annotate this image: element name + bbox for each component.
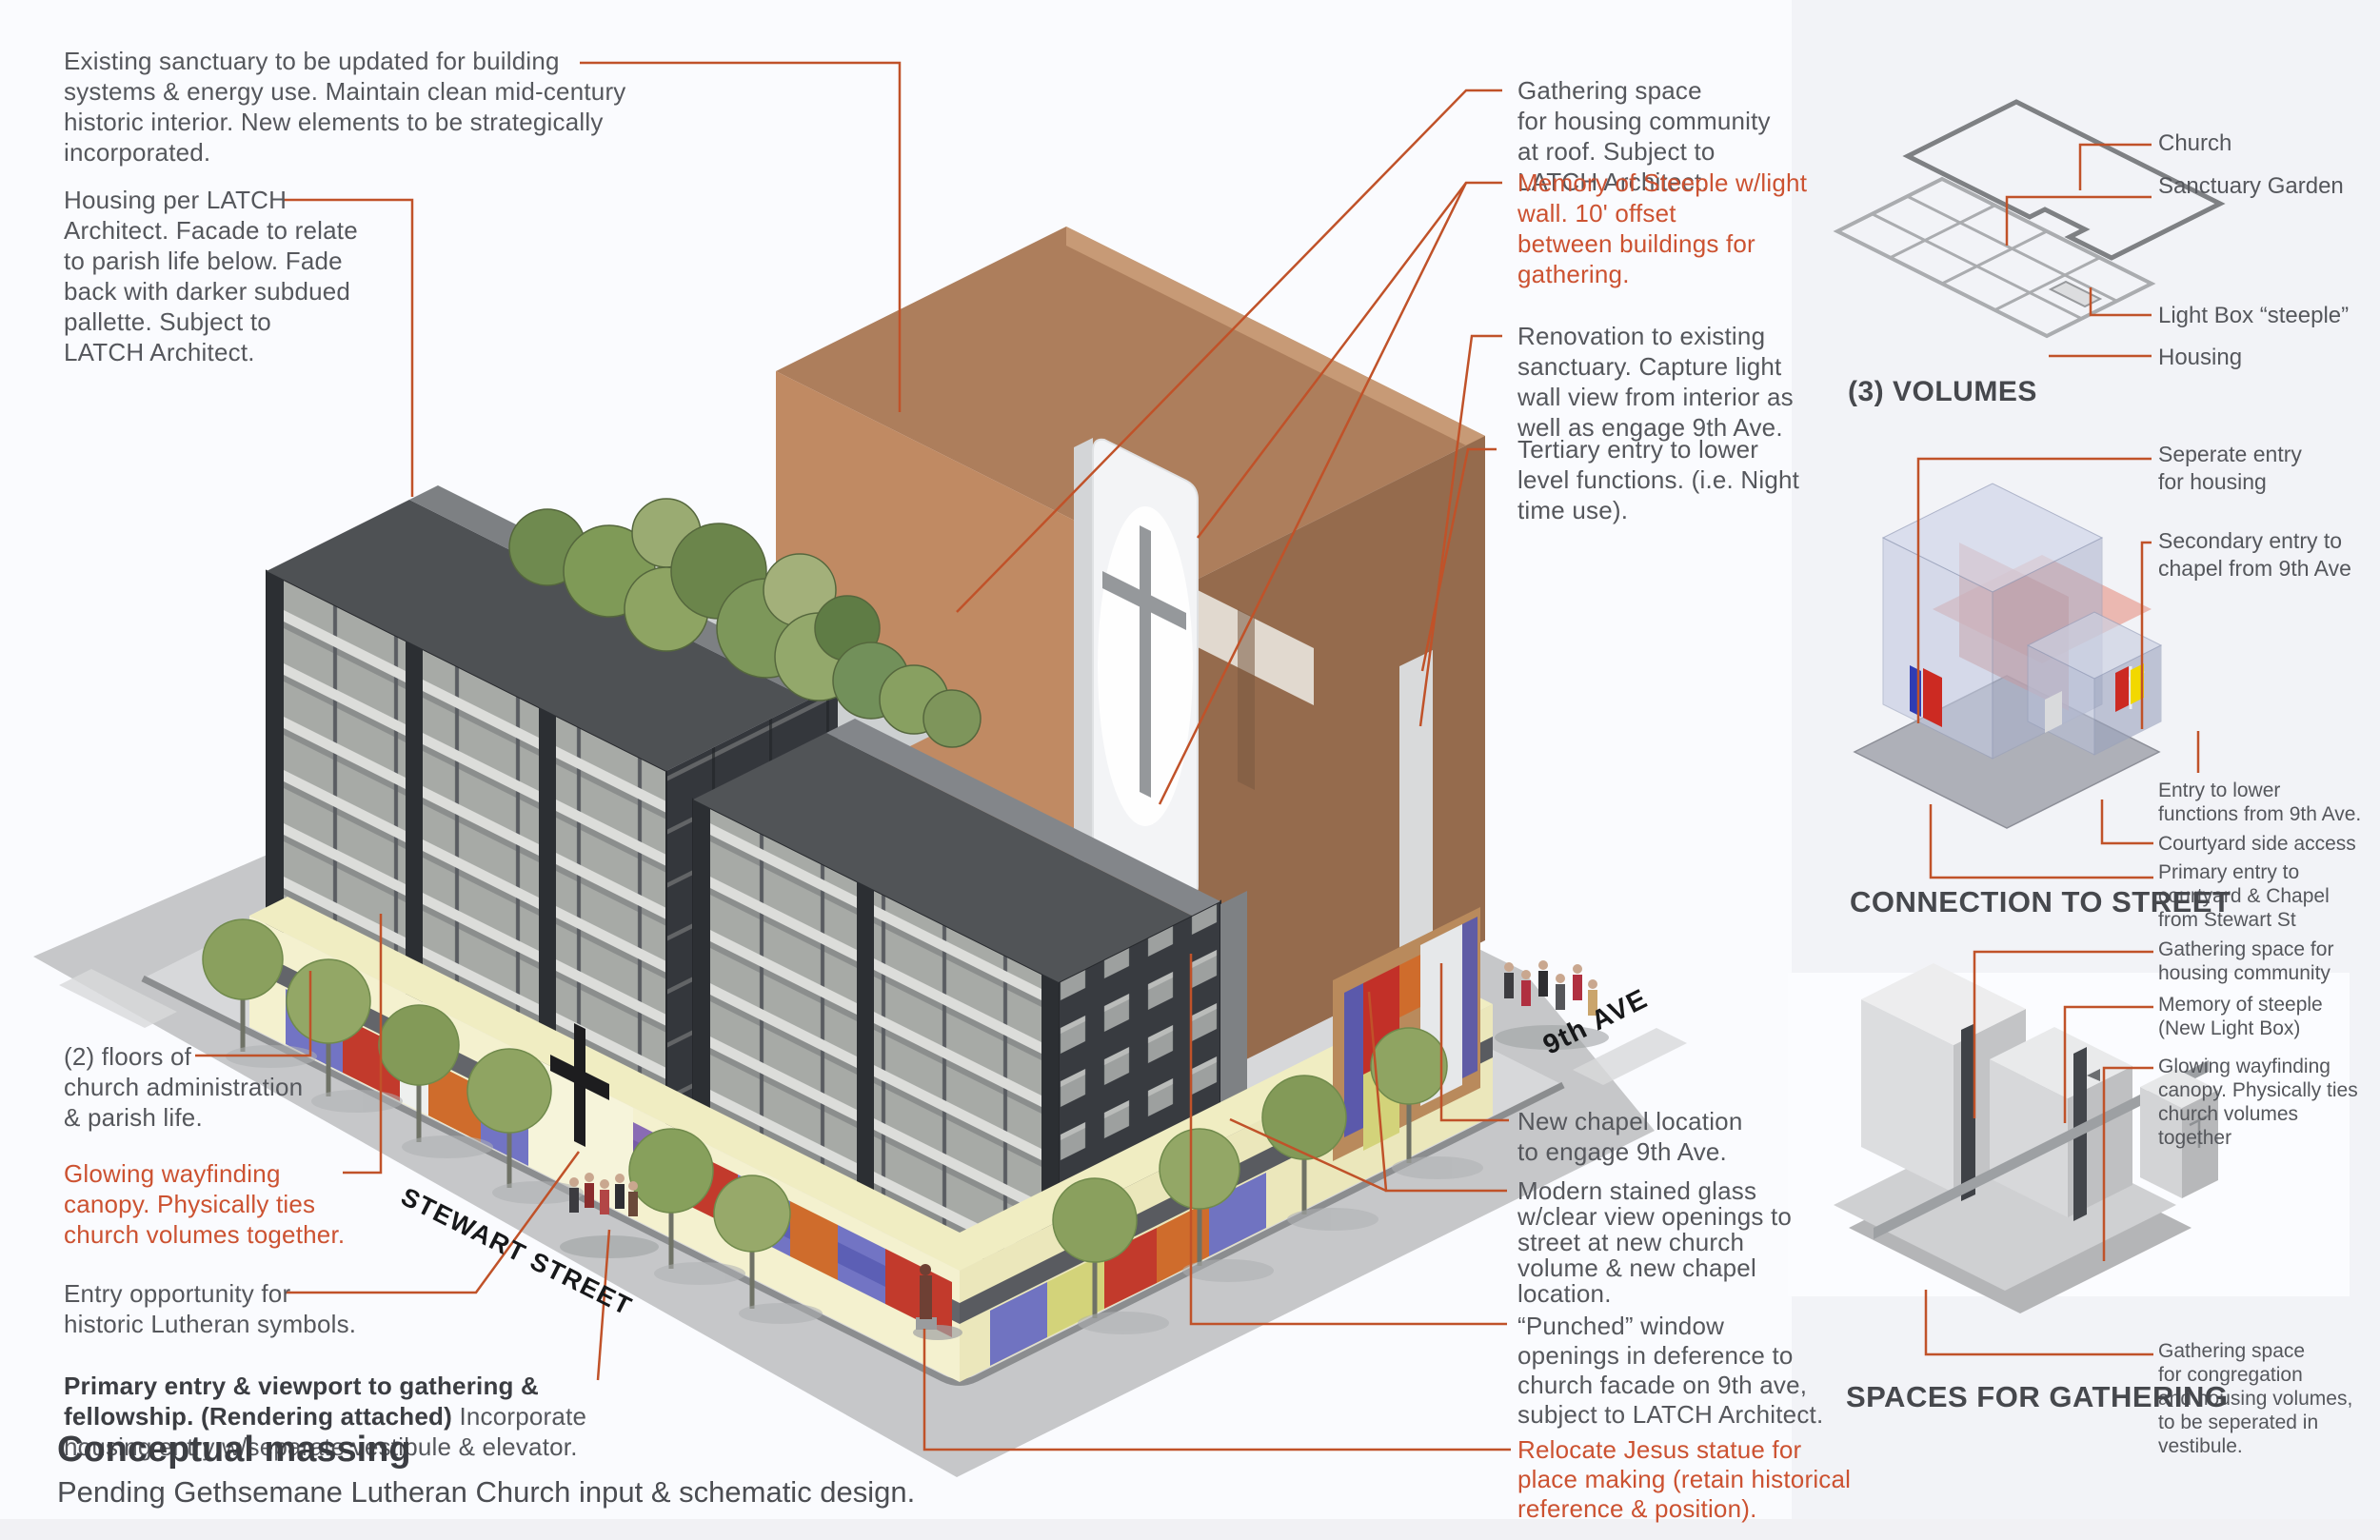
note-entry-opportunity: Entry opportunity for historic Lutheran … <box>64 1278 426 1339</box>
primary-entry-slab <box>1923 668 1942 727</box>
connection-label-housing-entry: Seperate entry for housing <box>2158 441 2302 496</box>
light-box-plan <box>2051 282 2100 306</box>
note-punched-window: “Punched” window openings in deference t… <box>1517 1312 1860 1430</box>
note-relocate-statue: Relocate Jesus statue for place making (… <box>1517 1435 1898 1524</box>
note-renovation: Renovation to existing sanctuary. Captur… <box>1517 321 1860 443</box>
page-title: Conceptual massing <box>57 1430 411 1471</box>
steeple-cross-icon <box>1140 525 1151 798</box>
diagram-connection <box>1854 484 2161 828</box>
steeple-light-box <box>1074 438 1198 896</box>
tertiary-entry-niche <box>1399 650 1433 980</box>
volumes-label-lightbox: Light Box “steeple” <box>2158 302 2349 330</box>
connection-label-lower-entry: Entry to lower functions from 9th Ave. <box>2158 779 2361 826</box>
gathering-label-steeple: Memory of steeple (New Light Box) <box>2158 993 2323 1040</box>
connection-title: CONNECTION TO STREET <box>1850 885 2231 919</box>
note-tertiary-entry: Tertiary entry to lower level functions.… <box>1517 434 1860 525</box>
gathering-label-housing: Gathering space for housing community <box>2158 938 2333 985</box>
volumes-label-garden: Sanctuary Garden <box>2158 172 2344 201</box>
connection-label-secondary-entry: Secondary entry to chapel from 9th Ave <box>2158 527 2351 582</box>
gathering-block <box>1990 1027 2132 1217</box>
note-housing-latch: Housing per LATCH Architect. Facade to r… <box>64 185 407 367</box>
note-new-chapel: New chapel location to engage 9th Ave. <box>1517 1106 1822 1167</box>
page-subtitle: Pending Gethsemane Lutheran Church input… <box>57 1475 915 1510</box>
note-admin-floors: (2) floors of church administration & pa… <box>64 1041 368 1133</box>
gathering-label-canopy: Glowing wayfinding canopy. Physically ti… <box>2158 1055 2358 1150</box>
volumes-label-housing: Housing <box>2158 344 2242 372</box>
note-existing-sanctuary: Existing sanctuary to be updated for bui… <box>64 46 673 168</box>
volumes-label-church: Church <box>2158 129 2231 158</box>
note-glowing-canopy: Glowing wayfinding canopy. Physically ti… <box>64 1158 387 1250</box>
cross-shadow <box>1238 609 1255 790</box>
connection-label-courtyard: Courtyard side access <box>2158 832 2356 856</box>
note-stained-glass: Modern stained glass w/clear view openin… <box>1517 1178 1841 1307</box>
note-memory-steeple: Memory of Steeple w/light wall. 10' offs… <box>1517 168 1860 289</box>
secondary-entry-slab <box>2115 666 2129 712</box>
volumes-title: (3) VOLUMES <box>1848 376 2037 408</box>
gathering-title: SPACES FOR GATHERING <box>1846 1380 2229 1414</box>
